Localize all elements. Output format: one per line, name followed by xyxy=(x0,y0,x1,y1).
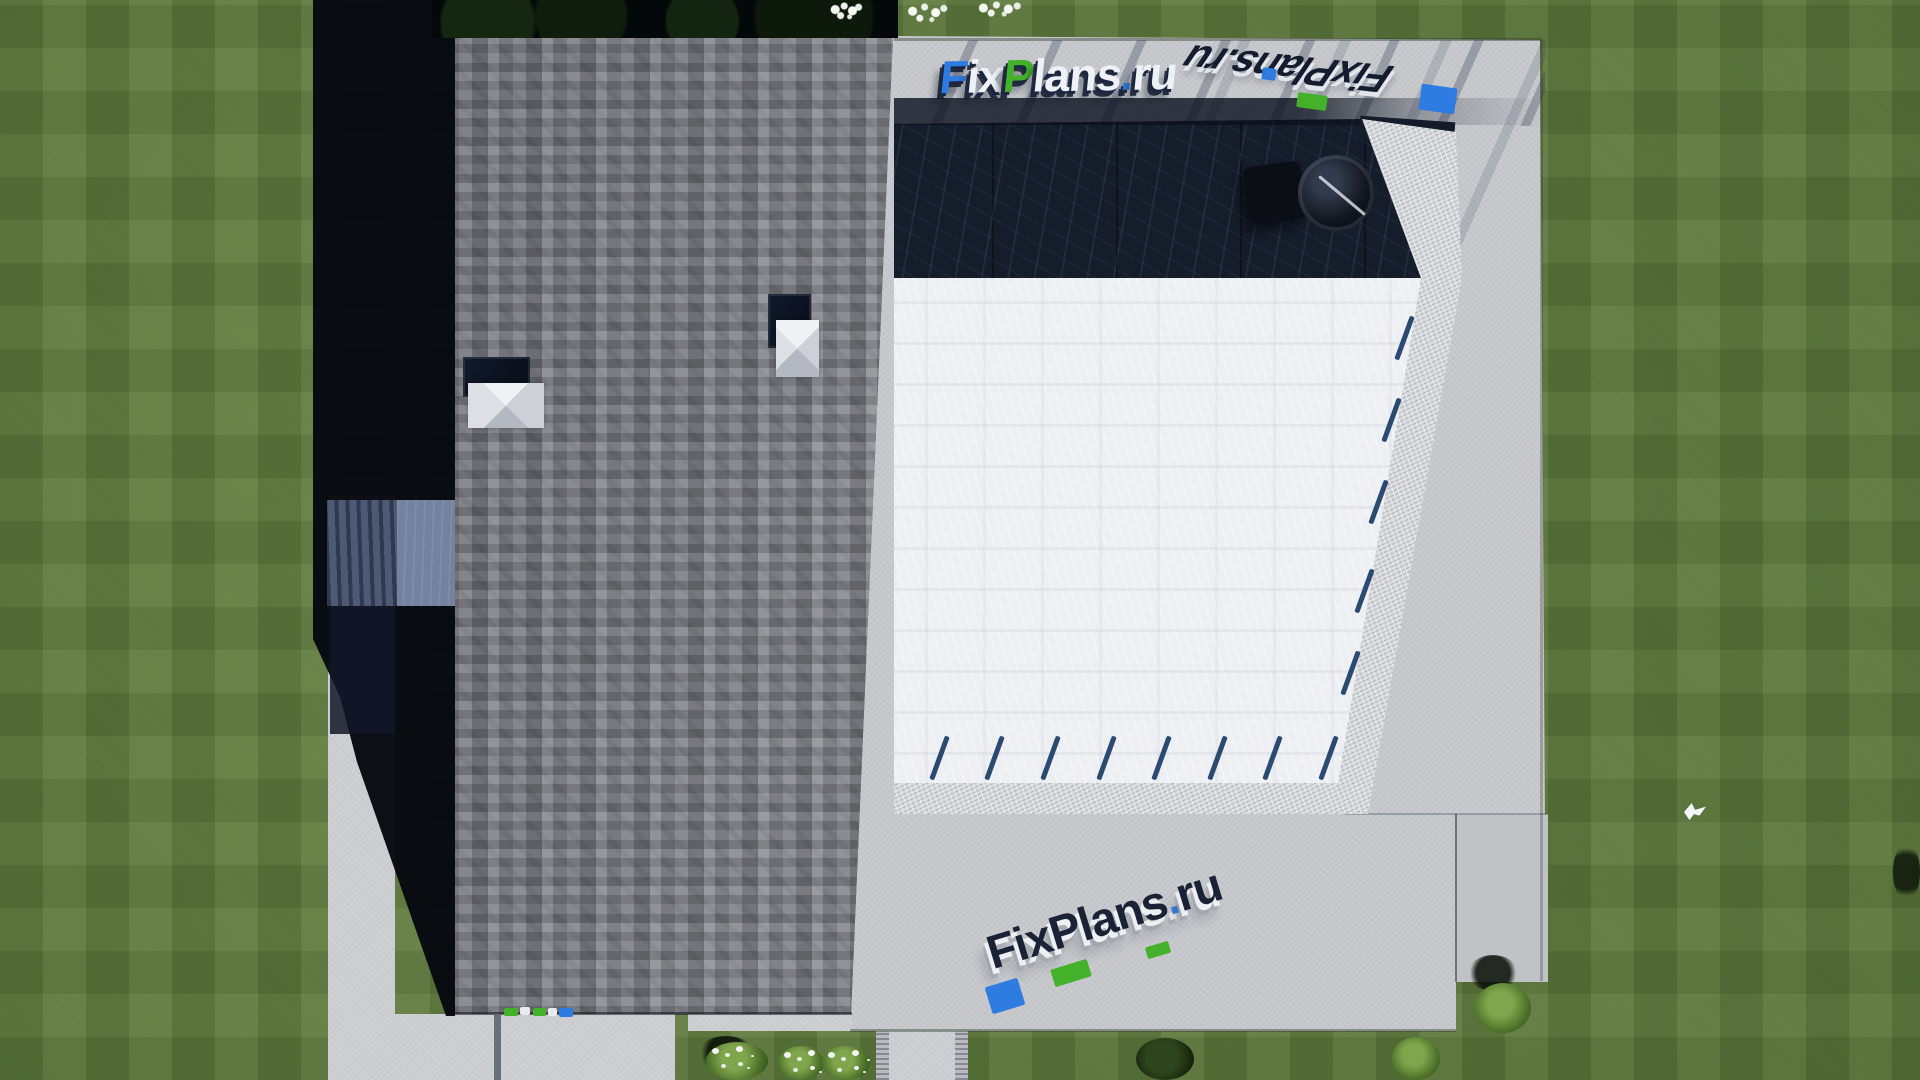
bush-bottom-dark xyxy=(1136,1038,1194,1080)
gravel-edge-left xyxy=(876,1031,889,1080)
bush-bottom-corner xyxy=(1392,1037,1440,1080)
watermark-segment: ru xyxy=(1131,50,1180,97)
micro-watermark-speck xyxy=(559,1008,573,1017)
watermark-segment: lans xyxy=(1031,51,1124,99)
path-in-shadow xyxy=(330,606,395,734)
flower-bush-top-3 xyxy=(973,0,1025,20)
flower-bush-bottom-3 xyxy=(822,1046,870,1080)
gravel-edge-right xyxy=(955,1031,968,1080)
pavement-seam-horizontal xyxy=(1345,813,1548,815)
micro-watermark-speck xyxy=(504,1008,518,1016)
entrance-canopy-dark-half xyxy=(327,500,397,606)
pavement-seam-vertical xyxy=(1455,814,1457,982)
skylight-dome-1 xyxy=(468,383,544,428)
watermark-accent-blue xyxy=(1418,84,1457,115)
path-gap-shadow xyxy=(494,1015,501,1080)
flower-bush-top-1 xyxy=(828,0,864,24)
flower-bush-bottom-2 xyxy=(778,1046,824,1080)
entrance-canopy-light-half xyxy=(397,500,455,606)
micro-watermark-speck xyxy=(520,1007,530,1015)
flower-bush-bottom-1 xyxy=(706,1042,768,1080)
path-bottom xyxy=(328,1014,675,1080)
flower-bush-top-2 xyxy=(903,0,951,28)
micro-watermark-speck xyxy=(533,1008,546,1016)
watermark-accent-blue xyxy=(1261,67,1277,81)
pavement-strip-below-roof xyxy=(688,1014,852,1031)
watermark-top: FixPlans.ru xyxy=(938,50,1180,100)
pavement-lawn-edge-bottom xyxy=(850,1029,1456,1032)
micro-watermark-speck xyxy=(548,1008,557,1016)
bush-right-of-pavement xyxy=(1475,983,1531,1033)
aerial-house-render: FixPlans.ru FixPlans.ru FixPlans.ru xyxy=(0,0,1920,1080)
tree-shadow-right-edge xyxy=(1893,843,1920,901)
skylight-dome-2 xyxy=(776,320,819,377)
barbecue-grill xyxy=(1243,150,1378,235)
watermark-segment: ix xyxy=(965,53,1006,100)
